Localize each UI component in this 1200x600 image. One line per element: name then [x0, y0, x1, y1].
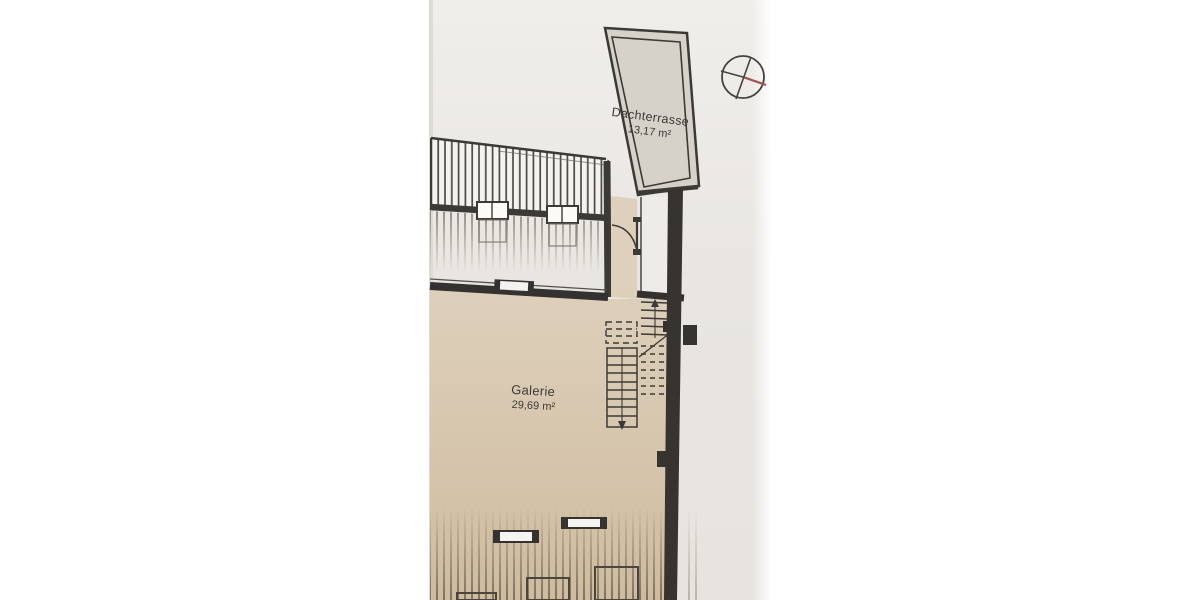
roof-window-bar-right: [562, 518, 606, 528]
page-background: Galerie 29,69 m²: [0, 0, 1200, 600]
wall-window: [495, 280, 533, 292]
wall-band-right: [607, 161, 608, 297]
wall-pier-right: [683, 325, 697, 345]
roof-hatching-top: [430, 138, 611, 297]
roof-window-bar-left: [494, 531, 538, 542]
stair-void: [641, 197, 668, 295]
galerie-room-area: 29,69 m²: [511, 399, 555, 413]
corridor-floor: [611, 196, 637, 299]
floor-plan-photo: Galerie 29,69 m²: [0, 0, 1200, 600]
roof-hatching-bottom: [430, 500, 702, 600]
stair-flight-dashed-right: [641, 346, 668, 394]
galerie-room-label: Galerie: [511, 382, 556, 399]
wall-pier-left: [657, 451, 668, 467]
